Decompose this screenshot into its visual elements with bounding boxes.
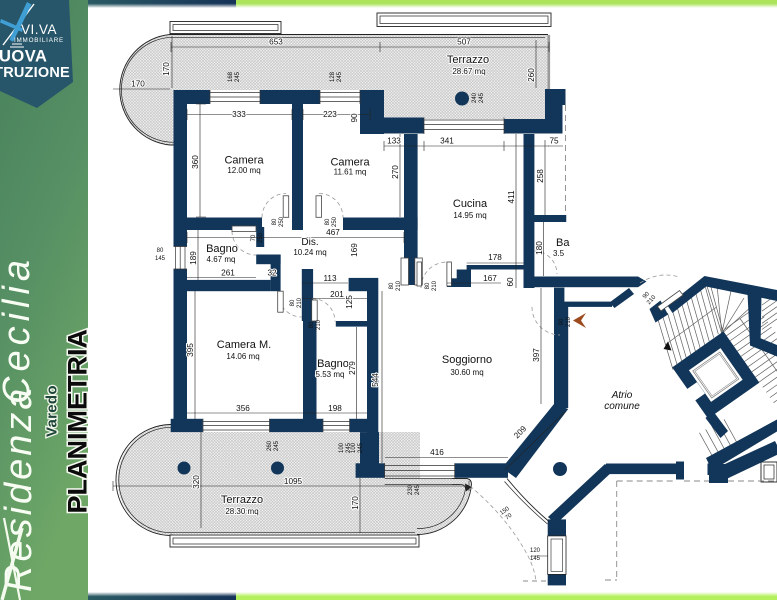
svg-text:PLANIMETRIA: PLANIMETRIA <box>63 329 93 514</box>
svg-text:1095: 1095 <box>284 477 303 486</box>
svg-text:75: 75 <box>549 137 559 146</box>
svg-text:4.67 mq: 4.67 mq <box>207 255 236 264</box>
svg-text:360: 360 <box>191 155 200 169</box>
svg-text:Bagno: Bagno <box>317 358 349 370</box>
svg-text:NUOVA: NUOVA <box>0 48 47 66</box>
svg-text:COSTRUZIONE: COSTRUZIONE <box>0 65 70 81</box>
svg-text:170: 170 <box>351 496 360 510</box>
svg-text:Ba: Ba <box>556 237 570 249</box>
svg-text:70: 70 <box>251 234 257 241</box>
svg-text:5.53 mq: 5.53 mq <box>316 370 345 379</box>
svg-text:245: 245 <box>358 442 364 453</box>
svg-text:128: 128 <box>330 71 336 82</box>
svg-text:Soggiorno: Soggiorno <box>442 354 492 366</box>
svg-text:245: 245 <box>337 71 343 82</box>
svg-text:3.5: 3.5 <box>553 249 565 258</box>
svg-text:170: 170 <box>162 62 171 76</box>
svg-text:Cucina: Cucina <box>453 198 488 210</box>
svg-text:416: 416 <box>430 448 444 457</box>
svg-text:11.61 mq: 11.61 mq <box>334 168 367 177</box>
svg-text:544: 544 <box>371 373 380 387</box>
svg-text:Cecilia: Cecilia <box>0 255 38 404</box>
svg-text:120: 120 <box>530 548 541 554</box>
svg-text:261: 261 <box>221 269 235 278</box>
svg-text:180: 180 <box>535 241 544 255</box>
svg-text:125: 125 <box>345 295 354 309</box>
svg-text:Camera M.: Camera M. <box>217 339 271 351</box>
svg-text:230: 230 <box>408 484 414 495</box>
svg-text:210: 210 <box>566 316 572 327</box>
svg-text:341: 341 <box>440 137 454 146</box>
svg-text:Varedo: Varedo <box>44 385 61 437</box>
svg-text:320: 320 <box>192 475 201 489</box>
svg-text:113: 113 <box>323 274 336 283</box>
svg-text:Dis.: Dis. <box>301 237 318 248</box>
svg-text:90: 90 <box>350 113 359 123</box>
svg-text:245: 245 <box>274 440 280 451</box>
svg-text:189: 189 <box>189 251 198 265</box>
svg-text:411: 411 <box>507 190 516 203</box>
svg-text:Terrazzo: Terrazzo <box>447 54 489 66</box>
svg-text:260: 260 <box>267 440 273 451</box>
svg-text:133: 133 <box>387 137 401 146</box>
svg-text:10.24 mq: 10.24 mq <box>293 248 326 257</box>
svg-text:IMMOBILIARE: IMMOBILIARE <box>14 37 64 44</box>
svg-text:30.60 mq: 30.60 mq <box>450 368 483 377</box>
svg-text:210: 210 <box>297 297 303 308</box>
svg-text:260: 260 <box>527 68 536 82</box>
svg-text:80: 80 <box>389 282 395 289</box>
svg-text:80: 80 <box>425 282 431 289</box>
svg-text:250: 250 <box>279 216 285 227</box>
svg-text:60: 60 <box>506 277 515 287</box>
svg-text:250: 250 <box>258 232 264 243</box>
svg-text:32: 32 <box>267 269 277 278</box>
svg-text:80: 80 <box>325 218 331 225</box>
svg-text:245: 245 <box>415 484 421 495</box>
svg-text:80: 80 <box>290 299 296 306</box>
svg-text:12.00 mq: 12.00 mq <box>227 166 260 175</box>
svg-text:210: 210 <box>396 280 402 291</box>
svg-text:507: 507 <box>457 38 471 47</box>
svg-text:245: 245 <box>346 442 352 453</box>
svg-text:28.67 mq: 28.67 mq <box>452 67 485 76</box>
svg-text:80: 80 <box>272 218 278 225</box>
svg-text:178: 178 <box>488 253 502 262</box>
svg-text:Camera: Camera <box>224 155 264 167</box>
svg-text:VI.VA: VI.VA <box>21 22 57 37</box>
svg-text:245: 245 <box>235 71 241 82</box>
svg-text:245: 245 <box>479 92 485 103</box>
svg-text:198: 198 <box>328 404 342 413</box>
svg-text:170: 170 <box>131 80 145 89</box>
svg-text:279: 279 <box>348 361 357 375</box>
svg-text:395: 395 <box>186 343 195 357</box>
svg-text:210: 210 <box>316 319 322 330</box>
svg-text:14.06 mq: 14.06 mq <box>226 352 259 361</box>
svg-text:Residenza: Residenza <box>0 385 40 592</box>
svg-text:145: 145 <box>530 556 541 562</box>
svg-text:397: 397 <box>532 348 541 362</box>
svg-text:356: 356 <box>236 404 250 413</box>
svg-text:240: 240 <box>472 92 478 103</box>
svg-text:Terrazzo: Terrazzo <box>221 494 263 506</box>
svg-text:223: 223 <box>323 110 337 119</box>
svg-text:Atrio: Atrio <box>611 390 633 401</box>
svg-text:145: 145 <box>155 256 166 262</box>
svg-text:14.95 mq: 14.95 mq <box>453 211 486 220</box>
svg-text:100: 100 <box>339 442 345 453</box>
svg-text:28.30 mq: 28.30 mq <box>225 507 258 516</box>
svg-text:258: 258 <box>536 169 545 183</box>
svg-text:467: 467 <box>326 228 340 237</box>
svg-text:201: 201 <box>330 290 344 299</box>
svg-text:653: 653 <box>269 38 283 47</box>
svg-text:168: 168 <box>228 71 234 82</box>
svg-text:270: 270 <box>391 165 400 179</box>
svg-text:90: 90 <box>559 318 565 325</box>
svg-text:167: 167 <box>483 274 497 283</box>
svg-text:80: 80 <box>309 321 315 328</box>
svg-text:210: 210 <box>432 280 438 291</box>
svg-text:333: 333 <box>232 110 246 119</box>
svg-text:Bagno: Bagno <box>206 243 238 255</box>
svg-text:80: 80 <box>157 248 164 254</box>
svg-text:169: 169 <box>350 243 359 257</box>
svg-text:comune: comune <box>604 401 640 412</box>
svg-text:250: 250 <box>332 216 338 227</box>
